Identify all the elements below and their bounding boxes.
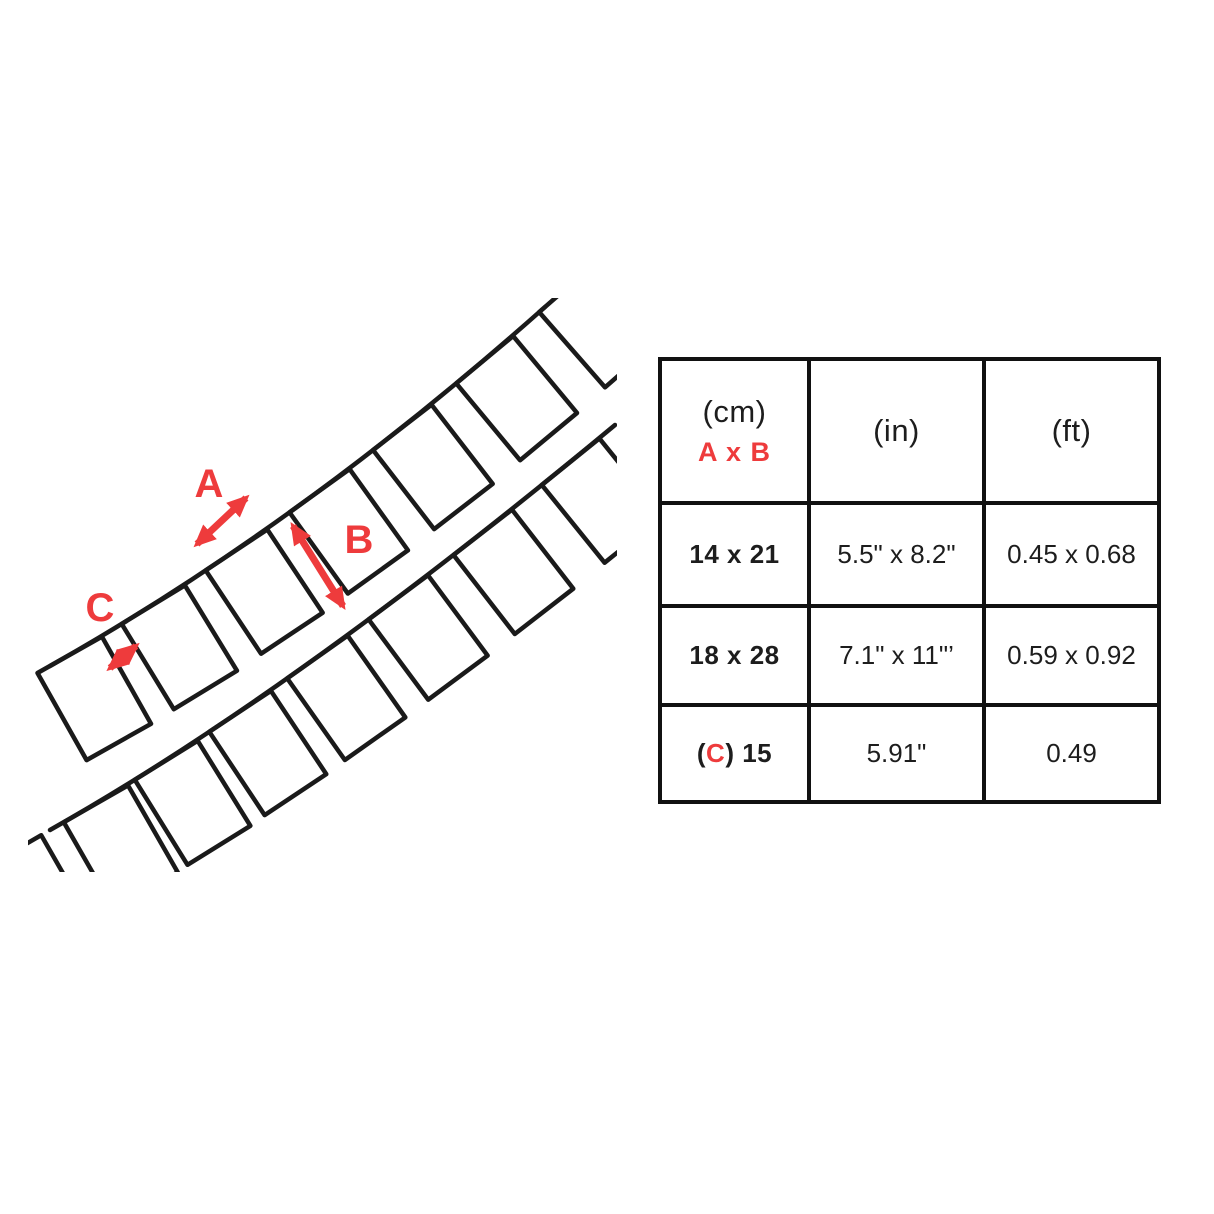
size-ft-value: 0.59 x 0.92 <box>1007 640 1136 671</box>
flag <box>542 438 662 562</box>
gap-letter-c: C <box>706 738 725 768</box>
table-cell-size-in: 7.1" x 11"’ <box>809 606 984 705</box>
gap-cm-value: (C) 15 <box>697 738 772 769</box>
flag <box>456 336 577 460</box>
flag <box>38 637 152 760</box>
flag <box>454 510 574 634</box>
flag <box>135 741 251 865</box>
unit-ft-label: (ft) <box>1052 413 1092 449</box>
garland-bottom-flags <box>0 438 662 958</box>
garland-string-top <box>50 307 545 666</box>
dimension-arrow-b-icon <box>293 526 343 606</box>
size-in-value: 7.1" x 11"’ <box>839 640 954 671</box>
size-ft-value: 0.45 x 0.68 <box>1007 539 1136 570</box>
unit-in-label: (in) <box>873 413 920 449</box>
flag <box>539 263 661 387</box>
size-table: (cm) A x B (in) (ft) 14 x 21 5.5" x 8.2"… <box>658 357 1161 804</box>
paren-close-and-value: ) 15 <box>725 738 772 768</box>
gap-in-value: 5.91" <box>867 738 927 769</box>
garland-string-bottom <box>50 425 615 830</box>
table-cell-size-ft: 0.45 x 0.68 <box>984 503 1159 606</box>
table-cell-size-in: 5.5" x 8.2" <box>809 503 984 606</box>
size-cm-value: 14 x 21 <box>689 539 779 570</box>
table-header-cm: (cm) A x B <box>660 359 809 503</box>
flag <box>64 785 178 909</box>
table-cell-size-cm: 18 x 28 <box>660 606 809 705</box>
dimension-label-c: C <box>86 586 115 630</box>
table-cell-gap-ft: 0.49 <box>984 705 1159 802</box>
paren-open: ( <box>697 738 706 768</box>
infographic-canvas: A B C (cm) A x B (in) (ft) 14 x 21 5.5" … <box>0 0 1214 1214</box>
size-in-value: 5.5" x 8.2" <box>837 539 955 570</box>
dimension-arrows <box>110 498 343 668</box>
flag <box>369 575 488 699</box>
dimension-label-b: B <box>345 518 374 562</box>
gap-ft-value: 0.49 <box>1046 738 1097 769</box>
dimension-label-a: A <box>195 462 224 506</box>
garland-top-flags <box>38 263 661 760</box>
table-cell-size-ft: 0.59 x 0.92 <box>984 606 1159 705</box>
size-cm-value: 18 x 28 <box>689 640 779 671</box>
table-header-in: (in) <box>809 359 984 503</box>
unit-cm-label: (cm) <box>703 394 767 430</box>
flag <box>122 585 237 709</box>
table-cell-gap-in: 5.91" <box>809 705 984 802</box>
table-header-ft: (ft) <box>984 359 1159 503</box>
table-cell-gap-cm: (C) 15 <box>660 705 809 802</box>
flag <box>373 405 493 529</box>
dims-axb-label: A x B <box>698 437 771 468</box>
flag <box>0 835 91 959</box>
table-cell-size-cm: 14 x 21 <box>660 503 809 606</box>
